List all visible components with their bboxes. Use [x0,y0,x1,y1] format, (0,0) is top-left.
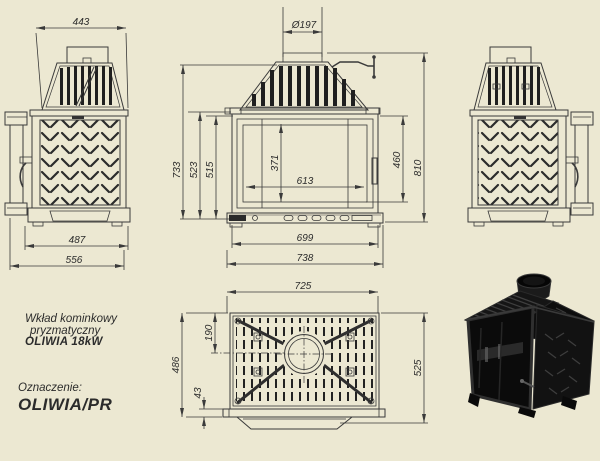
designation-block: Oznaczenie: OLIWIA/PR [18,382,112,415]
front-view [225,53,383,227]
dim-label-525: 525 [413,359,424,376]
product-title-line3: OLIWIA 18kW [25,337,117,349]
dim-label-738: 738 [297,253,314,264]
product-3d-render [465,274,594,418]
left-side-view [5,47,130,226]
dim-label-371: 371 [270,155,281,172]
dim-label-43: 43 [193,387,204,399]
technical-drawing-page: 443 487 556 [0,0,600,461]
product-title-block: Wkład kominkowy pryzmatyczny OLIWIA 18kW [25,314,117,349]
designation-value: OLIWIA/PR [18,395,112,415]
dim-label-733: 733 [172,161,183,178]
dim-label-190: 190 [204,324,215,341]
dim-label-460: 460 [392,151,403,168]
dim-label-515: 515 [205,161,216,178]
top-plan-view [223,313,385,429]
dim-label-613: 613 [297,176,314,187]
dim-label-810: 810 [413,159,424,176]
right-side-view [468,47,593,226]
front-view-dimensions [180,7,428,268]
dim-label-523: 523 [189,161,200,178]
dim-label-556: 556 [66,255,83,266]
product-title-line1: Wkład kominkowy [25,314,117,326]
dim-label-487: 487 [69,235,86,246]
dim-label-725: 725 [295,281,312,292]
dim-label-699: 699 [297,233,314,244]
designation-label: Oznaczenie: [18,382,112,394]
dim-label-443: 443 [73,17,90,28]
dim-label-486: 486 [171,356,182,373]
dim-label-flue: Ø197 [291,20,317,31]
